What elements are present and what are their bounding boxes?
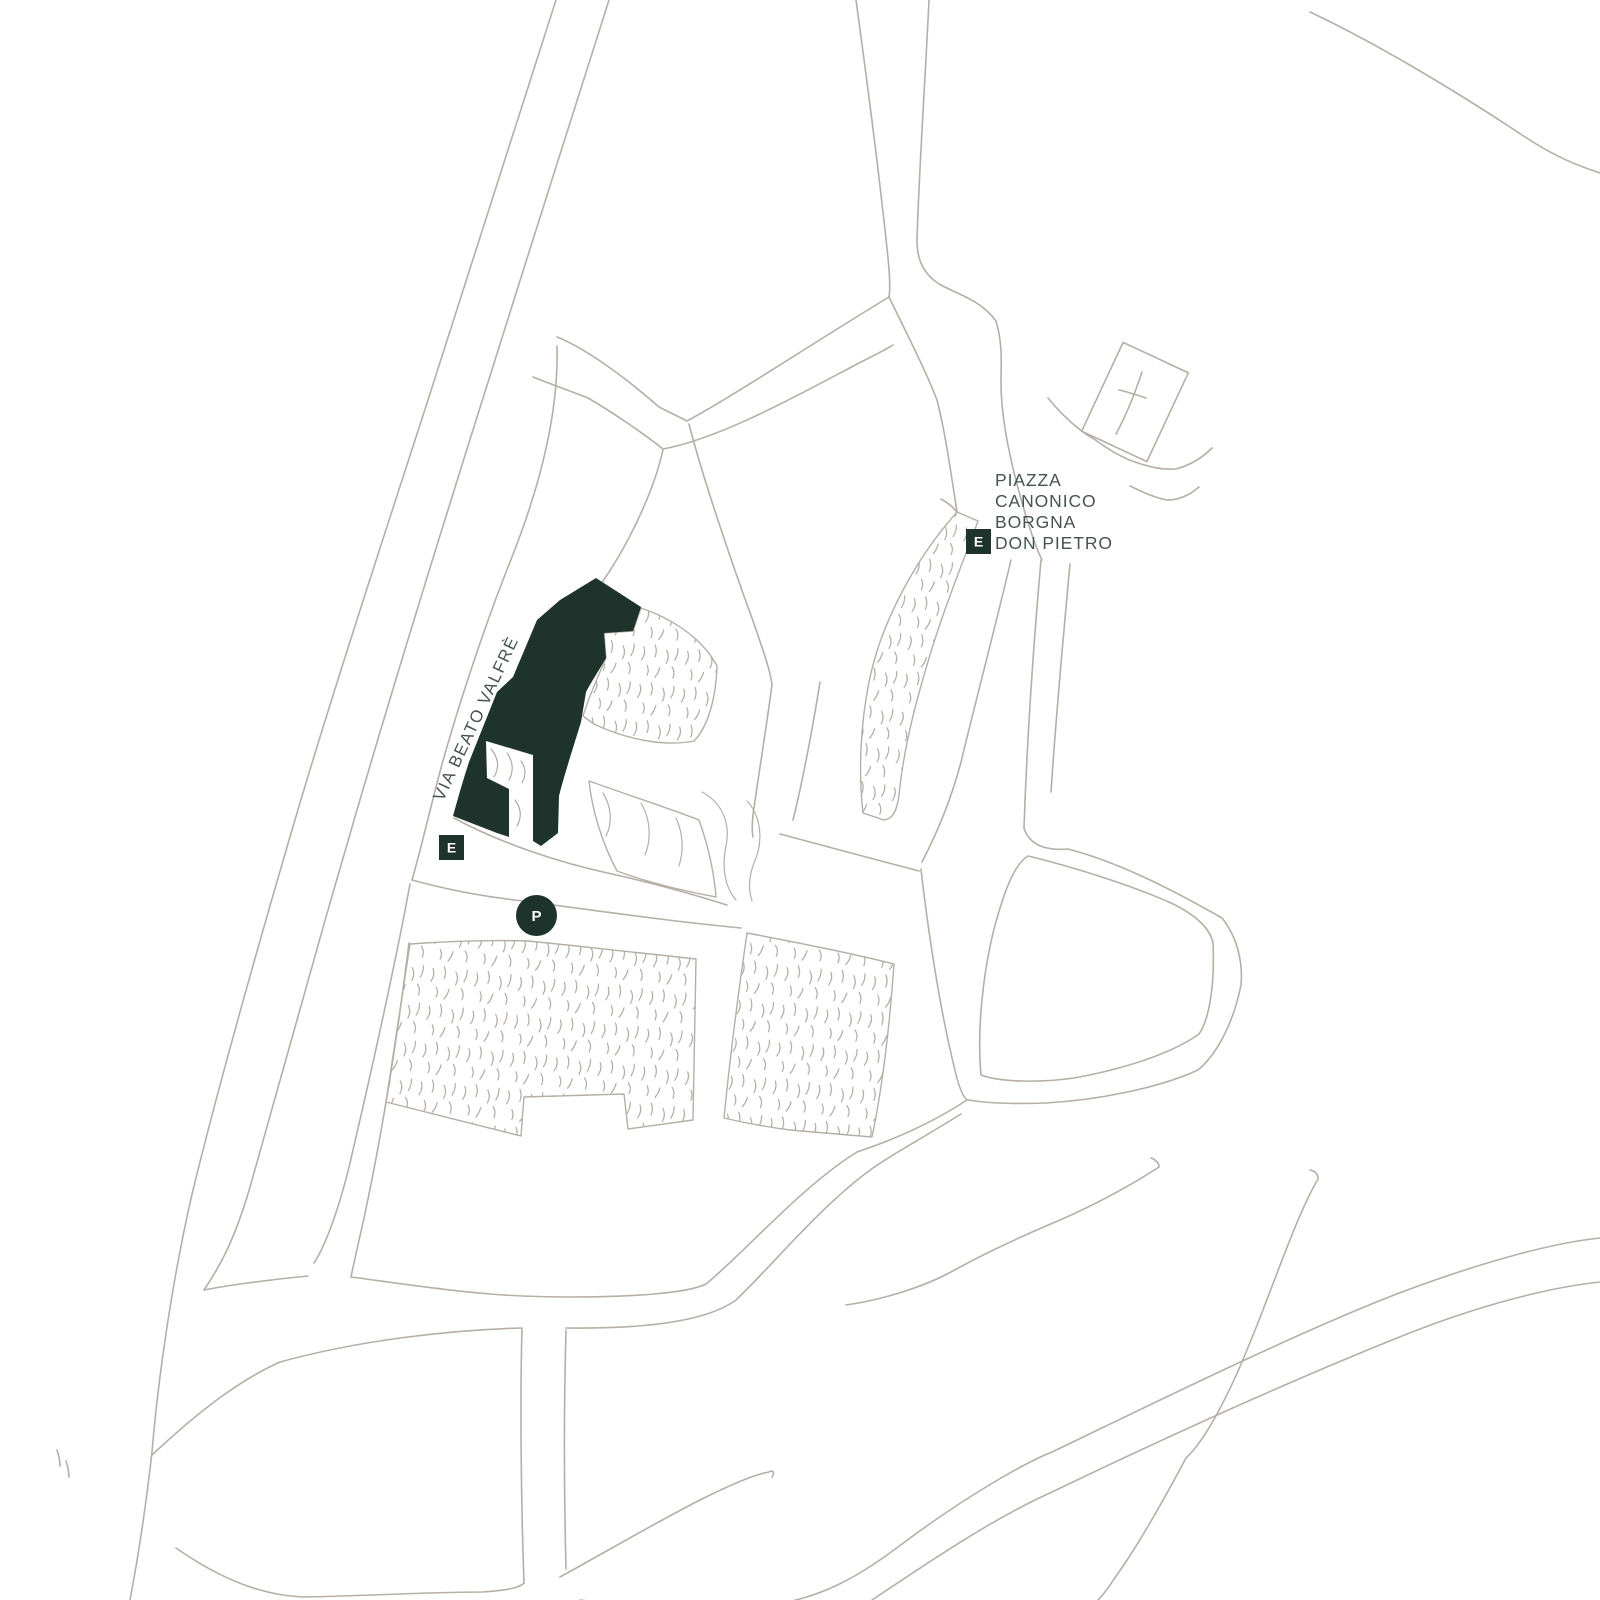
street-line bbox=[1310, 12, 1600, 173]
street-line bbox=[1130, 486, 1199, 500]
parking-badge-letter: P bbox=[531, 908, 541, 925]
texture-block bbox=[861, 512, 978, 820]
entrance-badge-letter: E bbox=[974, 534, 983, 550]
site-plan-map: VIA BEATO VALFRÈ PIAZZA CANONICO BORGNA … bbox=[0, 0, 1600, 1600]
tree-sketch-line bbox=[521, 761, 525, 783]
street-line bbox=[980, 856, 1214, 1081]
street-line bbox=[557, 297, 889, 421]
street-line bbox=[793, 682, 820, 820]
texture-block bbox=[386, 941, 696, 1136]
church bbox=[1082, 342, 1189, 461]
street-line bbox=[872, 1282, 1600, 1600]
street-line bbox=[152, 1328, 521, 1455]
street-line bbox=[66, 1461, 69, 1477]
garden-sketches bbox=[589, 781, 760, 901]
tree-sketch-line bbox=[515, 800, 520, 826]
texture-block bbox=[724, 933, 894, 1137]
parking-badge[interactable]: P bbox=[516, 895, 557, 936]
church-outline bbox=[1082, 342, 1189, 461]
piazza-label-line: CANONICO bbox=[995, 491, 1097, 511]
street-line bbox=[57, 1450, 60, 1466]
tree-sketch-line bbox=[507, 753, 512, 780]
street-line bbox=[968, 828, 1241, 1103]
street-line bbox=[176, 1548, 524, 1597]
piazza-label-line: BORGNA bbox=[995, 512, 1076, 532]
street-line bbox=[351, 1277, 568, 1297]
street-line bbox=[204, 1276, 308, 1290]
street-line bbox=[568, 1152, 857, 1297]
street-network bbox=[57, 0, 1600, 1600]
garden-block bbox=[589, 781, 716, 897]
tree-sketch-line bbox=[491, 749, 498, 777]
street-line bbox=[889, 297, 957, 512]
piazza-label-line: PIAZZA bbox=[995, 470, 1062, 490]
piazza-label-line: DON PIETRO bbox=[995, 533, 1113, 553]
entrance-badge-piazza[interactable]: E bbox=[966, 529, 991, 554]
street-line bbox=[856, 0, 890, 297]
street-line bbox=[533, 345, 893, 449]
street-line bbox=[521, 1328, 524, 1583]
street-line bbox=[846, 1158, 1159, 1305]
street-line bbox=[351, 943, 409, 1277]
street-line bbox=[921, 869, 967, 1100]
street-line bbox=[580, 1238, 1600, 1600]
street-line bbox=[1024, 560, 1041, 828]
entrance-badge-letter: E bbox=[447, 840, 456, 856]
street-line bbox=[565, 1330, 567, 1569]
site-plan-page: VIA BEATO VALFRÈ PIAZZA CANONICO BORGNA … bbox=[0, 0, 1600, 1600]
street-line bbox=[601, 450, 663, 584]
street-line bbox=[780, 834, 919, 871]
entrance-badge-via-beato-valfre[interactable]: E bbox=[439, 835, 464, 860]
street-line bbox=[1051, 564, 1070, 792]
street-line bbox=[560, 1471, 773, 1577]
